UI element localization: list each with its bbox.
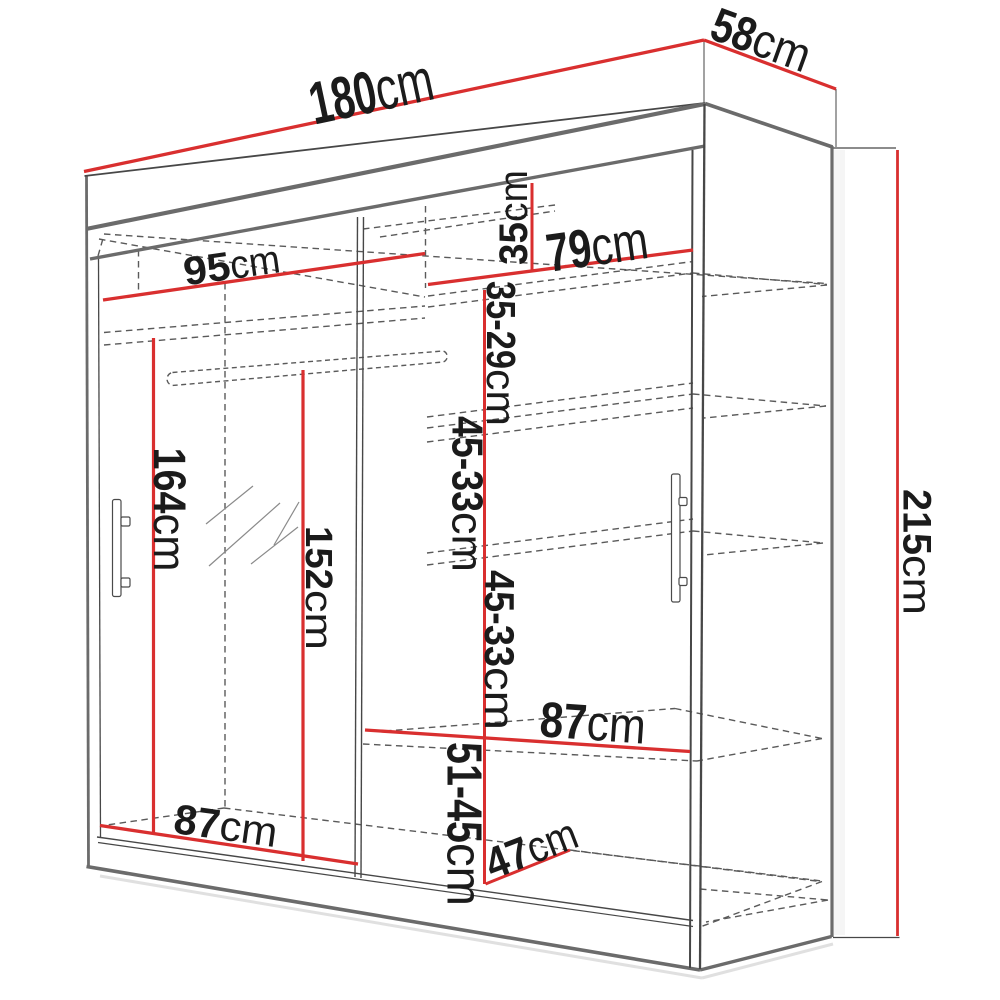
svg-text:35-29: 35-29 xyxy=(478,281,524,369)
svg-text:cm: cm xyxy=(227,237,283,288)
svg-text:cm: cm xyxy=(144,514,195,572)
svg-text:cm: cm xyxy=(895,555,939,615)
svg-text:cm: cm xyxy=(443,512,492,572)
svg-text:51-45: 51-45 xyxy=(436,742,490,843)
svg-text:45-33: 45-33 xyxy=(443,416,492,512)
svg-text:cm: cm xyxy=(587,210,652,277)
svg-text:cm: cm xyxy=(297,590,339,650)
svg-text:cm: cm xyxy=(436,843,490,906)
svg-text:cm: cm xyxy=(585,695,648,755)
svg-text:87: 87 xyxy=(171,795,223,848)
svg-text:164: 164 xyxy=(144,448,195,514)
svg-text:152: 152 xyxy=(297,526,339,590)
svg-text:215: 215 xyxy=(895,489,939,555)
svg-text:95: 95 xyxy=(181,244,234,294)
svg-text:45-33: 45-33 xyxy=(476,570,523,667)
svg-text:cm: cm xyxy=(492,170,536,222)
svg-text:87: 87 xyxy=(538,691,589,750)
svg-text:cm: cm xyxy=(476,667,523,730)
svg-text:cm: cm xyxy=(217,801,281,856)
svg-text:35: 35 xyxy=(492,222,536,265)
